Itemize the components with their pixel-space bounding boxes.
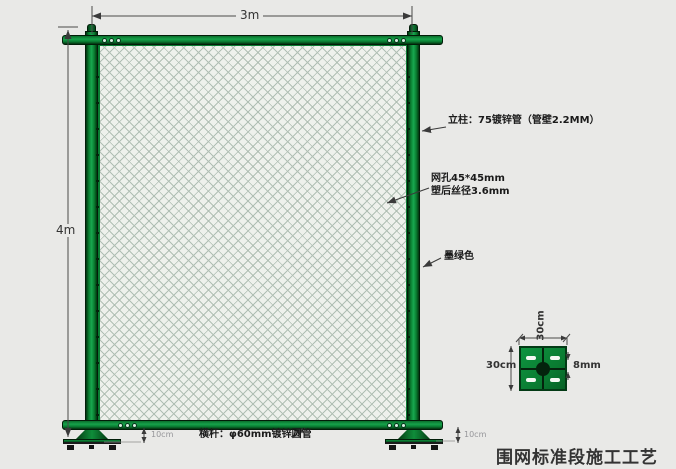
dim-label-ground-gap-left: 10cm bbox=[151, 430, 173, 439]
fence-construction-diagram: 3m 4m 10cm 10cm 立柱：75镀锌管（管壁2.2MM） 网孔45*4… bbox=[0, 0, 676, 469]
leader-post-note bbox=[422, 127, 446, 131]
note-mesh-spec: 网孔45*45mm 塑后丝径3.6mm bbox=[431, 172, 510, 198]
leader-color-note bbox=[423, 258, 441, 267]
dim-label-height: 4m bbox=[52, 224, 79, 237]
page-title: 围网标准段施工工艺 bbox=[496, 443, 658, 468]
plate-height-label: 30cm bbox=[486, 360, 516, 371]
note-rail-spec: 横杆：φ60mm镀锌圆管 bbox=[199, 428, 312, 441]
dim-label-ground-gap-right: 10cm bbox=[464, 430, 486, 439]
dimension-lines-overlay bbox=[0, 0, 676, 469]
dim-10cm-right bbox=[436, 427, 458, 443]
dim-10cm-left bbox=[104, 428, 144, 443]
plate-width-label: 30cm bbox=[536, 306, 547, 346]
leader-mesh-note bbox=[387, 188, 429, 203]
note-mesh-color: 墨绿色 bbox=[444, 250, 474, 263]
note-mesh-spec-line1: 网孔45*45mm bbox=[431, 172, 510, 185]
note-post-spec: 立柱：75镀锌管（管壁2.2MM） bbox=[448, 114, 600, 127]
dim-label-width: 3m bbox=[236, 9, 263, 22]
note-mesh-spec-line2: 塑后丝径3.6mm bbox=[431, 185, 510, 198]
plate-hole-label: 8mm bbox=[573, 360, 601, 371]
